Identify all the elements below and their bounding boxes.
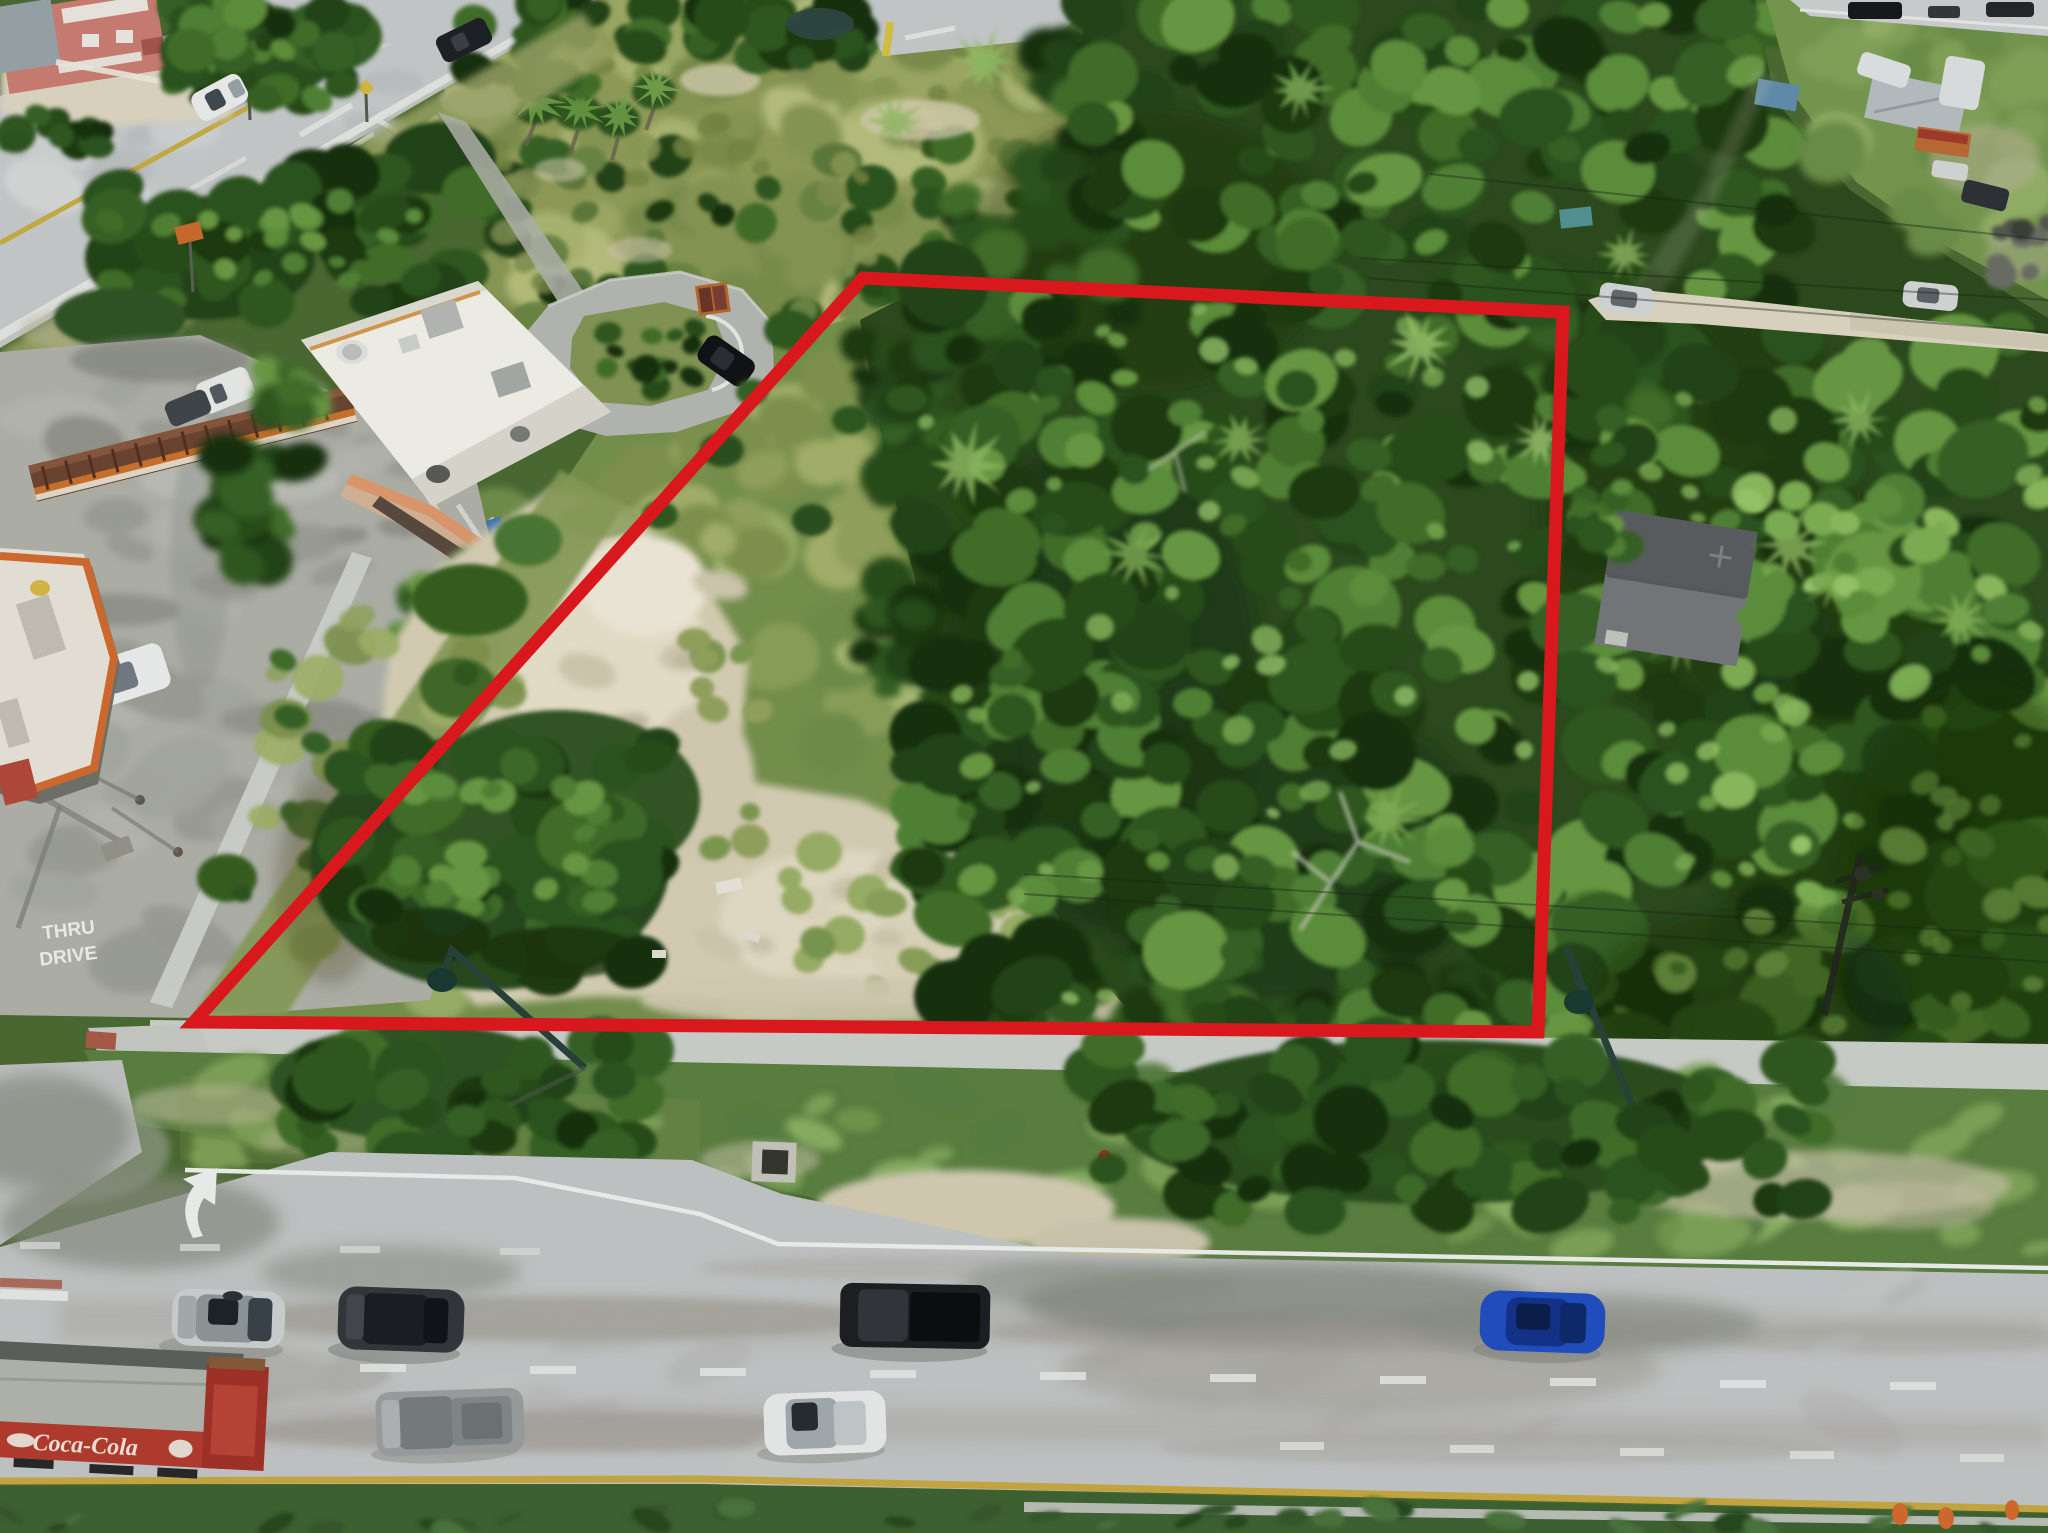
svg-text:Coca-Cola: Coca-Cola xyxy=(32,1430,139,1461)
